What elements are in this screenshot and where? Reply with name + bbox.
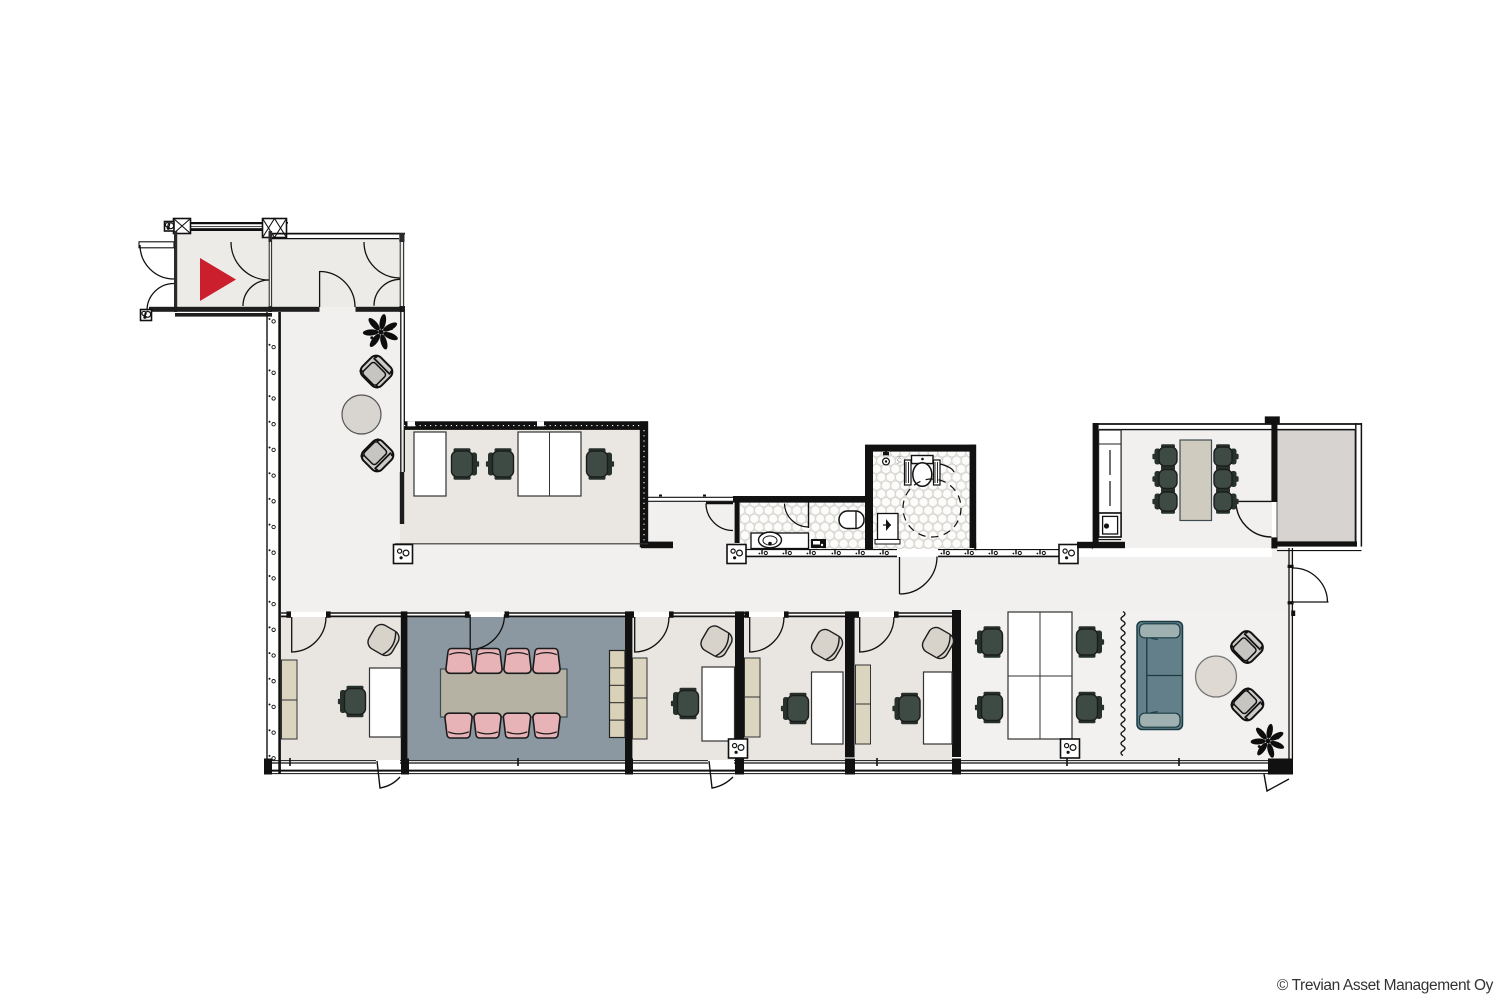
svg-text:© Trevian Asset Management Oy: © Trevian Asset Management Oy (1277, 977, 1494, 994)
svg-text:KA: KA (895, 456, 901, 464)
